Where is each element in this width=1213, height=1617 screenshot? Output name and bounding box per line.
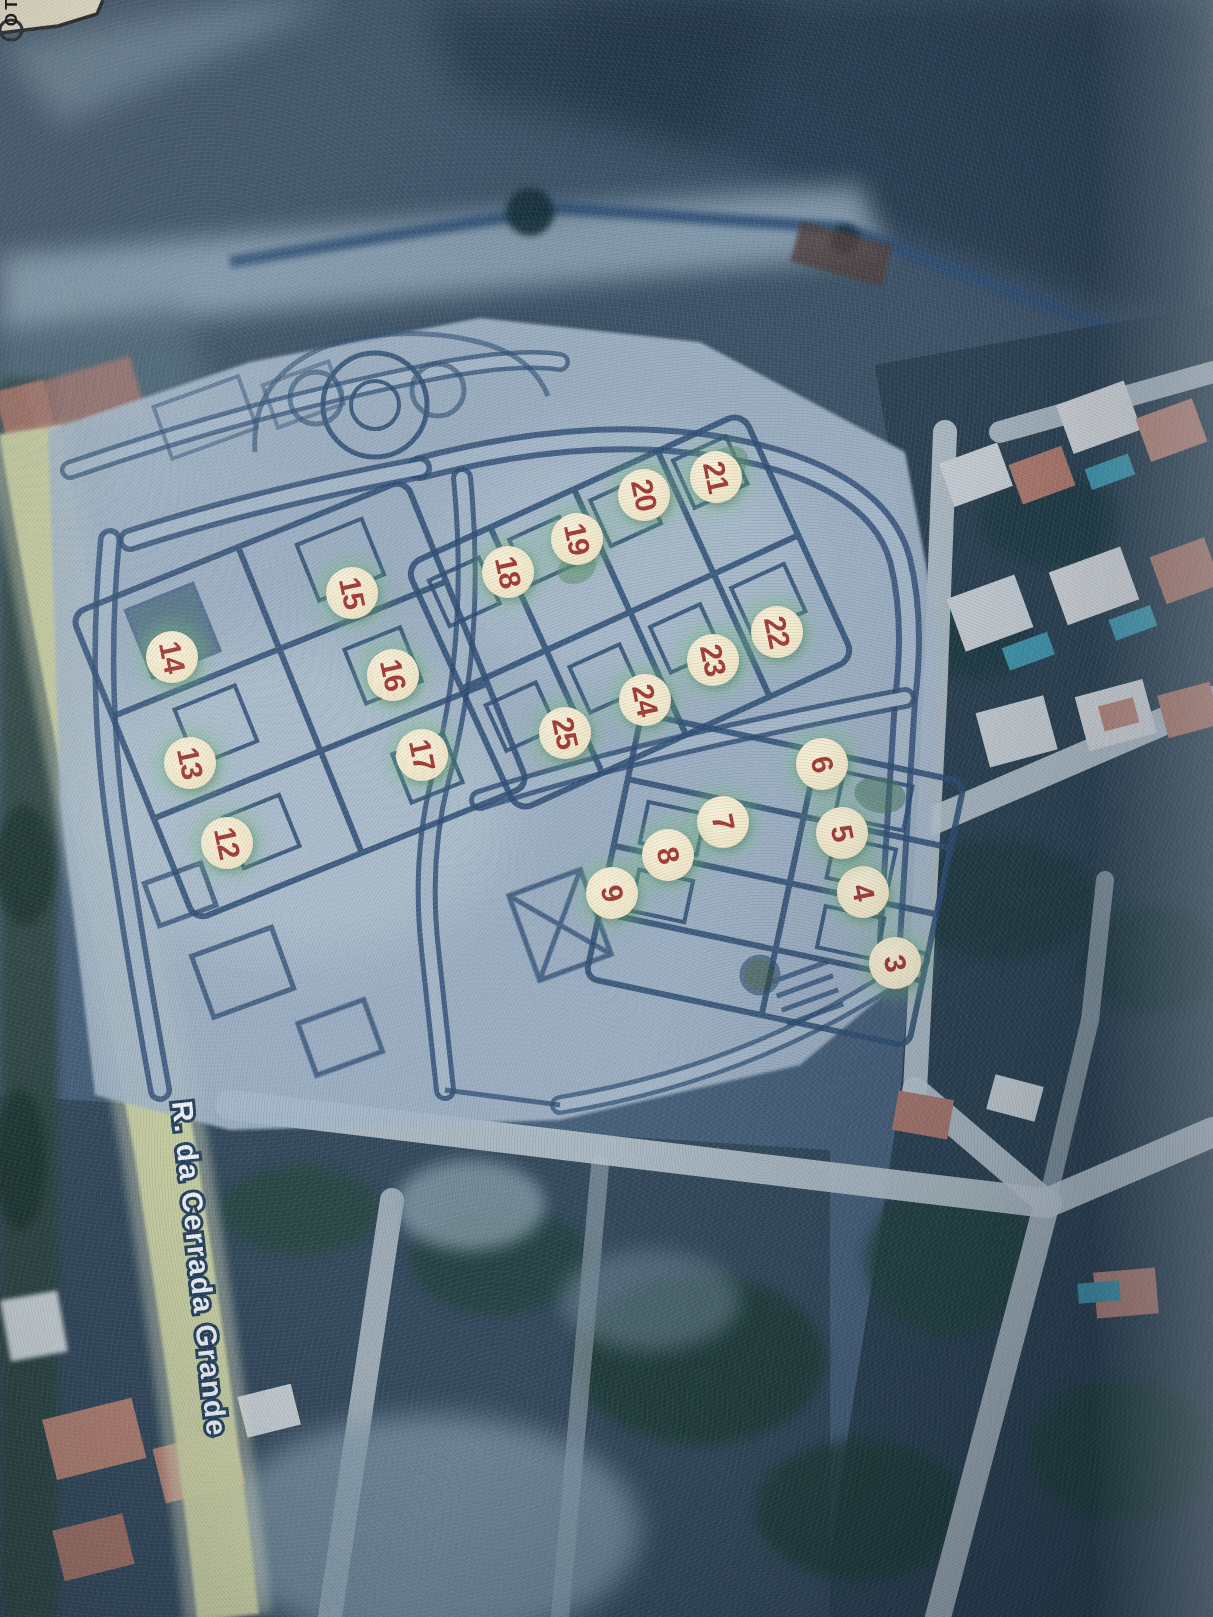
satellite-map-background: R. da Cerrada Grande <box>0 0 1213 1617</box>
allotment-plan-overlay <box>48 318 964 1130</box>
corner-label-letters: TO <box>1 0 21 27</box>
aerial-lot-map-photo: R. da Cerrada Grande 3456789121314151617… <box>0 0 1213 1617</box>
corner-label-letter: O <box>4 10 19 30</box>
